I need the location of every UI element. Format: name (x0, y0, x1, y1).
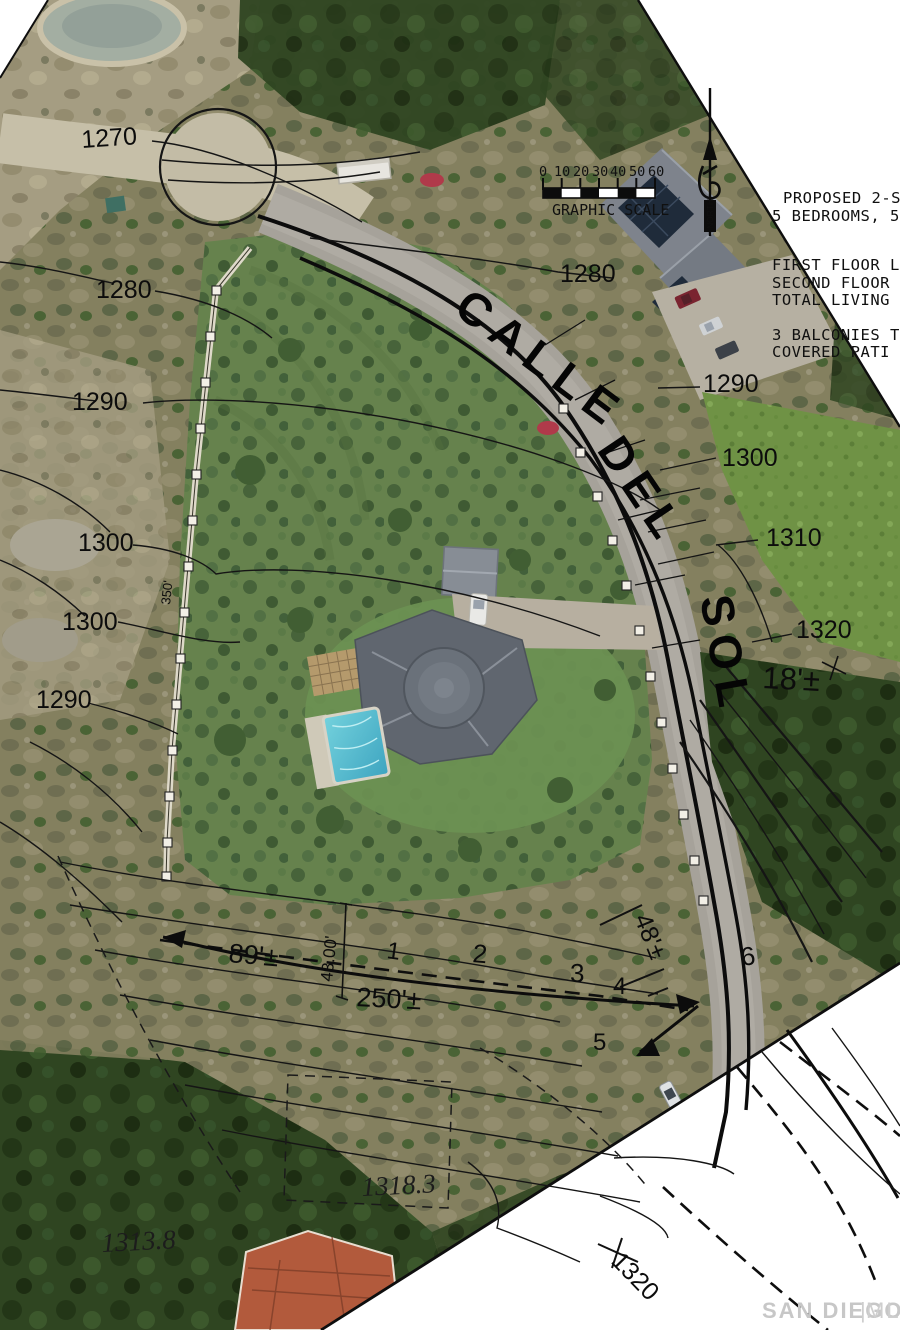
leader-1290-east (658, 387, 700, 388)
lot-number-4: 4 (613, 973, 626, 1000)
scale-tick-30: 30 (592, 164, 608, 180)
contour-label-1300: 1300 (78, 529, 134, 557)
lot-number-3: 3 (570, 958, 584, 988)
note-line: SECOND FLOOR (772, 274, 890, 292)
lot-number-5: 5 (593, 1029, 606, 1056)
small-shed (105, 196, 126, 213)
garage-shed (442, 547, 498, 598)
graphic-scale: 0 10 20 30 40 50 60 GRAPHIC SCALE (539, 164, 669, 219)
contour-label-1290: 1290 (703, 370, 759, 398)
site-plan-page: NORTH 0 10 20 30 40 50 60 GRAPHIC SCALE … (0, 0, 900, 1330)
scale-tick-50: 50 (629, 164, 645, 180)
flower-patch (420, 173, 444, 187)
dirt-turnaround (164, 113, 272, 221)
dim-89ft: 89'± (227, 938, 279, 972)
scale-tick-10: 10 (554, 164, 570, 180)
note-line: COVERED PATI (772, 343, 890, 361)
contour-label-1320: 1320 (796, 616, 852, 644)
project-notes: PROPOSED 2-S 5 BEDROOMS, 5 FIRST FLOOR L… (772, 189, 900, 361)
road-edge-continuation (787, 1030, 898, 1198)
flower-bush (537, 421, 559, 435)
contour-label-1290: 1290 (36, 686, 92, 714)
contour-label-1300: 1300 (722, 444, 778, 472)
spot-elevation-1313: 1313.8 (101, 1224, 177, 1258)
dim-350ft: 350' (158, 580, 175, 606)
pond-water (62, 4, 162, 48)
contour-line (600, 1157, 734, 1238)
scale-tick-0: 0 (539, 164, 547, 180)
scale-caption: GRAPHIC SCALE (552, 201, 669, 219)
contour-label-1320: 1320 (606, 1247, 665, 1306)
note-line: PROPOSED 2-S (783, 189, 900, 207)
pool (305, 705, 390, 789)
contour-label-1280: 1280 (96, 276, 152, 304)
lot-number-2: 2 (471, 938, 488, 969)
dim-250ft: 250'± (356, 982, 423, 1015)
scale-tick-40: 40 (610, 164, 626, 180)
contour-label-1290: 1290 (72, 388, 128, 416)
note-line: TOTAL LIVING (772, 291, 890, 309)
contour-label-1300: 1300 (62, 608, 118, 636)
spot-elevation-1318: 1318.3 (361, 1168, 437, 1202)
brush-west (0, 840, 150, 1060)
watermark-mls: MLS (866, 1298, 900, 1323)
dashed-arc (780, 1042, 900, 1136)
site-plan-canvas: NORTH 0 10 20 30 40 50 60 GRAPHIC SCALE … (0, 0, 900, 1330)
contour-label-1280: 1280 (560, 260, 616, 288)
note-line: FIRST FLOOR L (772, 256, 900, 274)
dim-18ft: 18'± (762, 660, 821, 698)
watermark: SAN DIEGO | MLS (762, 1298, 900, 1323)
scale-tick-20: 20 (573, 164, 589, 180)
note-line: 3 BALCONIES T (772, 326, 900, 344)
north-label: NORTH (705, 199, 715, 229)
contour-label-1270: 1270 (80, 122, 137, 154)
contour-label-1310: 1310 (766, 524, 822, 552)
note-line: 5 BEDROOMS, 5 (772, 207, 900, 225)
scale-tick-60: 60 (648, 164, 664, 180)
